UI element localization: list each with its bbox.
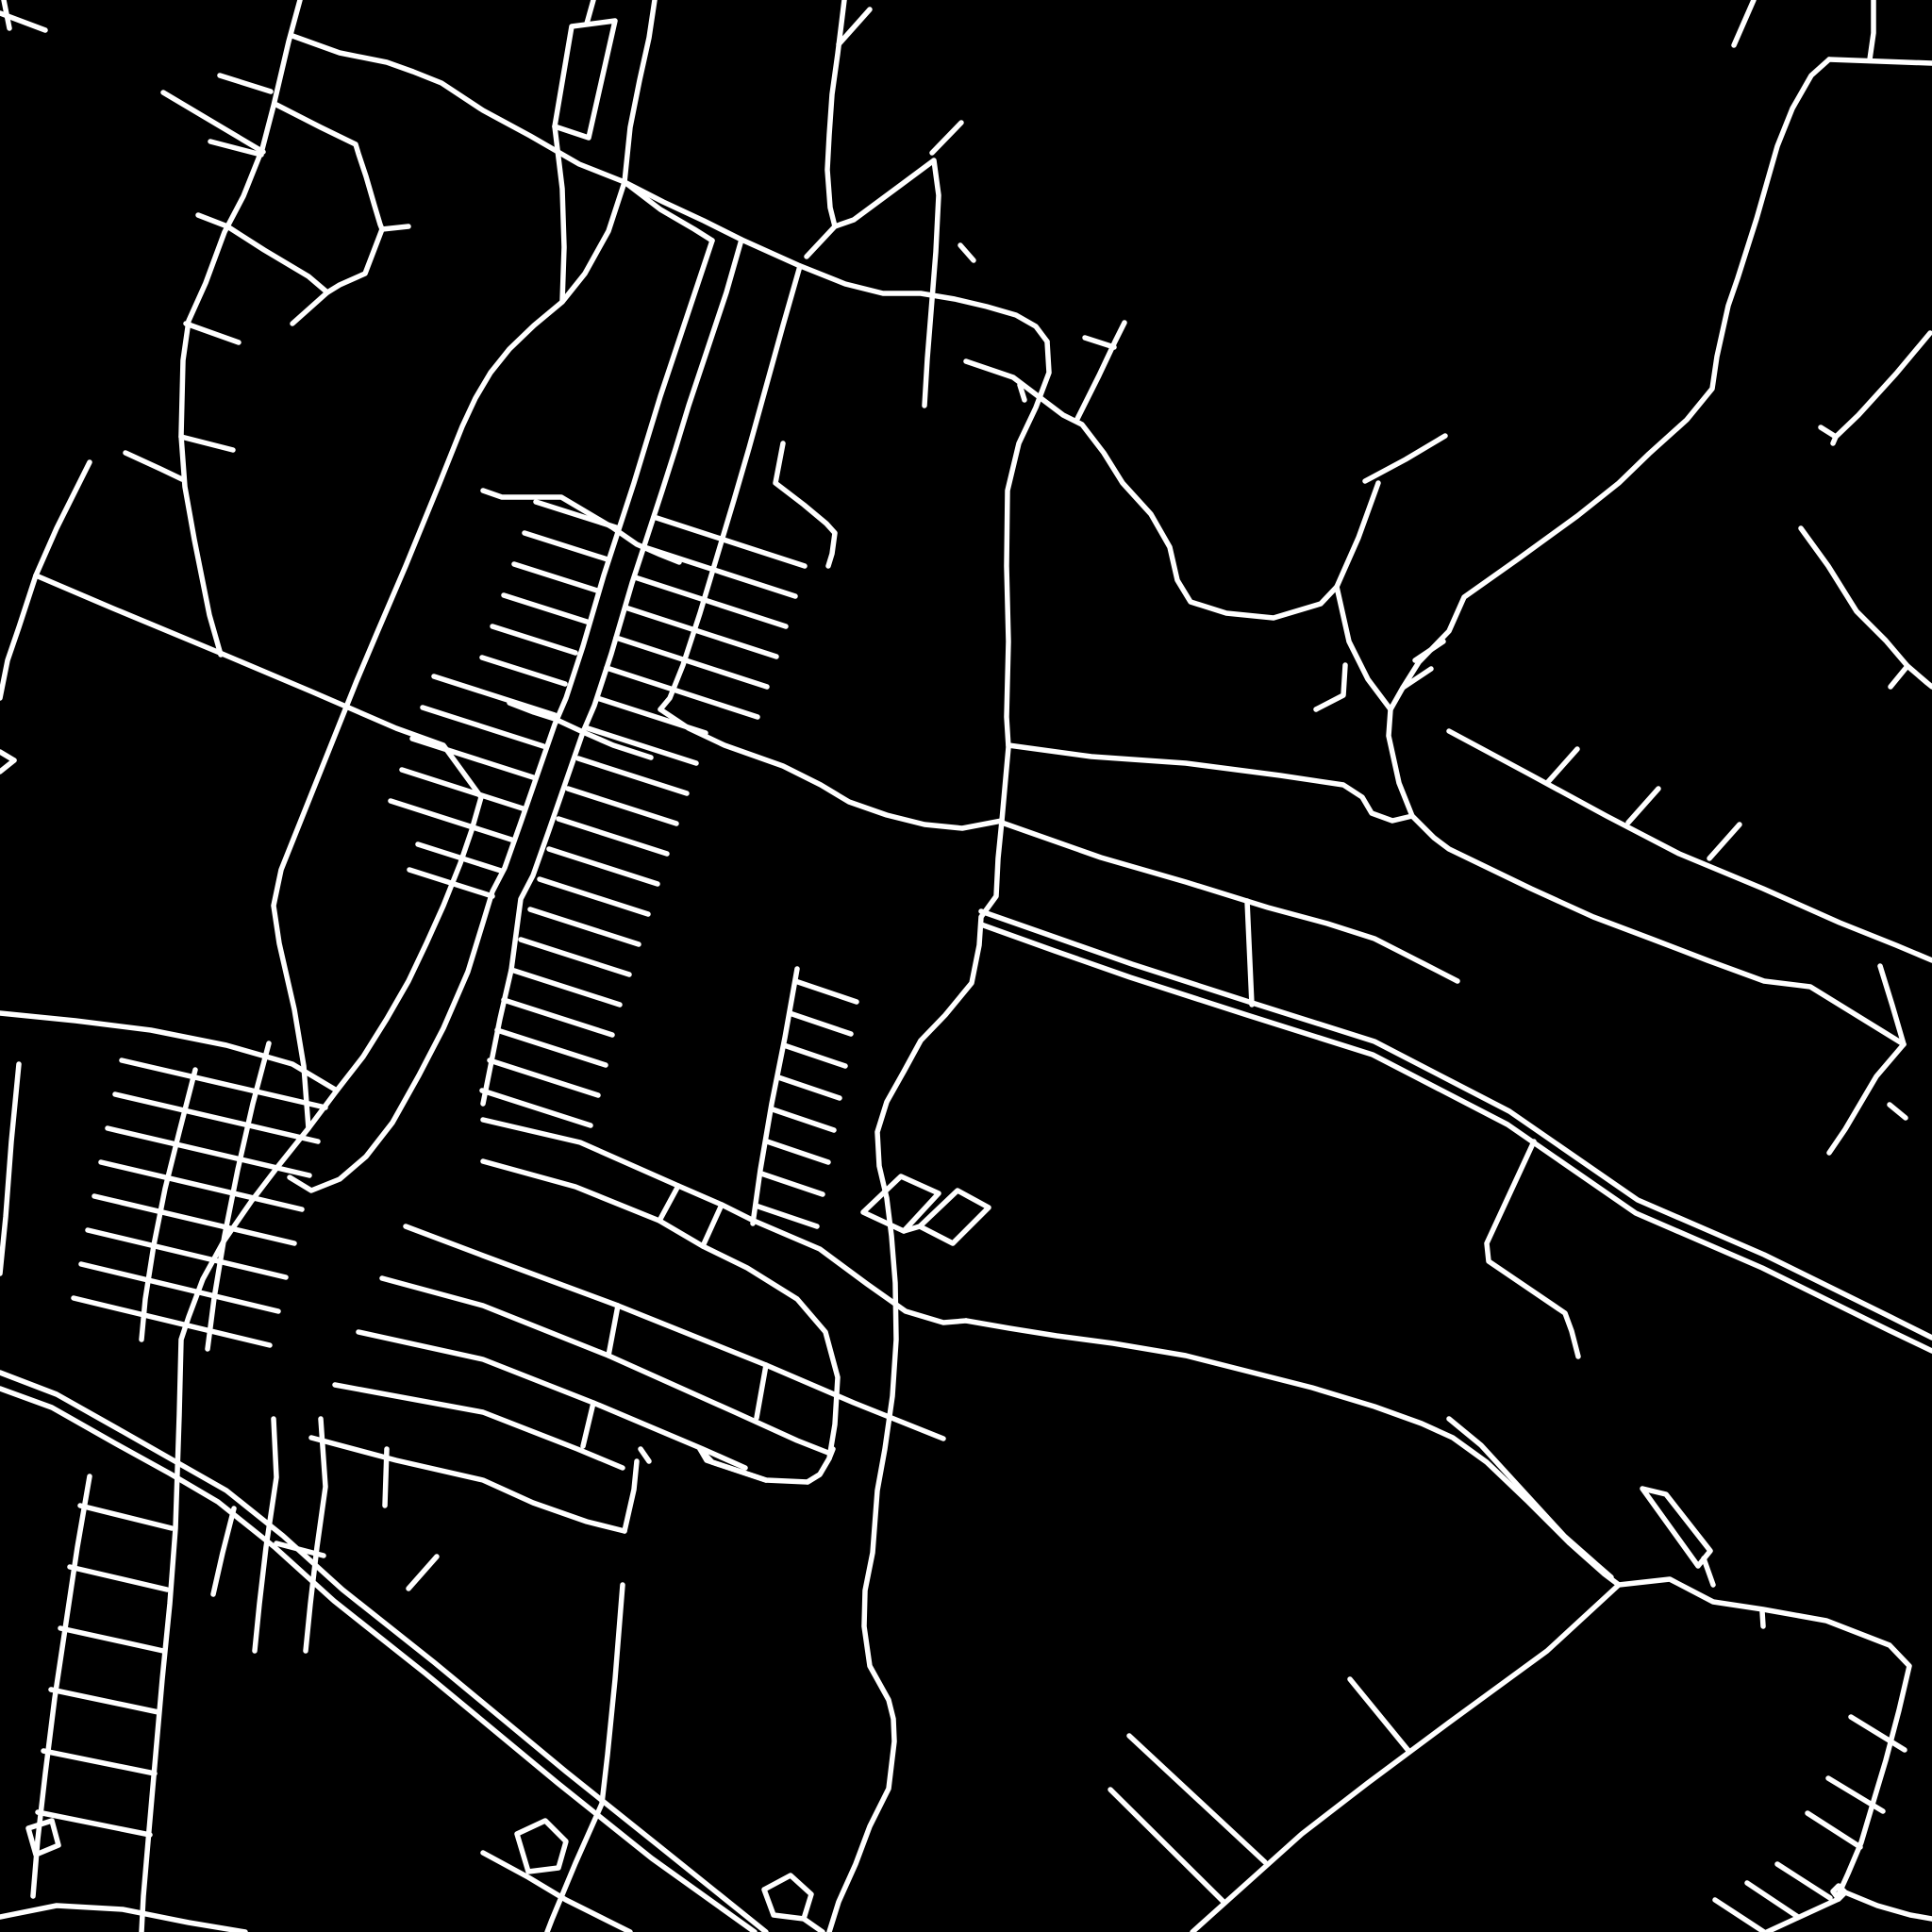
map-background <box>0 0 1932 1932</box>
road-map-canvas <box>0 0 1932 1932</box>
road-segment <box>382 226 408 229</box>
road-map <box>0 0 1932 1932</box>
road-segment <box>385 1449 387 1506</box>
road-segment <box>1762 1611 1763 1626</box>
